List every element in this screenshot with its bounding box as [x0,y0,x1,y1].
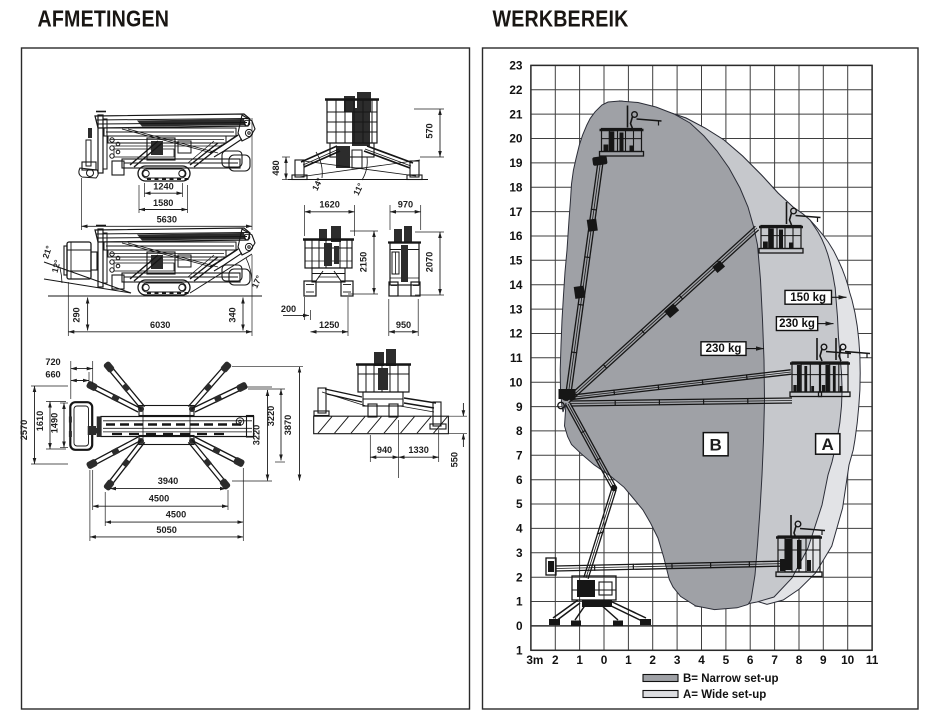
svg-text:0: 0 [516,619,523,633]
svg-text:5: 5 [723,653,730,667]
svg-text:22: 22 [509,83,523,97]
svg-text:2: 2 [552,653,559,667]
svg-text:17: 17 [509,205,523,219]
svg-text:9: 9 [516,400,523,414]
svg-text:5630: 5630 [157,215,177,225]
svg-text:2: 2 [649,653,656,667]
svg-text:10: 10 [841,653,855,667]
svg-text:1: 1 [516,644,523,658]
svg-text:1610: 1610 [35,411,45,431]
svg-text:A= Wide set-up: A= Wide set-up [683,689,766,701]
svg-text:1: 1 [516,595,523,609]
svg-text:1490: 1490 [50,413,60,433]
svg-text:3: 3 [516,546,523,560]
svg-text:7: 7 [516,449,523,463]
svg-text:12: 12 [509,327,523,341]
svg-text:21: 21 [509,107,523,121]
svg-text:1: 1 [576,653,583,667]
svg-text:3m: 3m [526,653,543,667]
svg-text:1580: 1580 [153,198,173,208]
svg-text:6: 6 [516,473,523,487]
svg-text:1250: 1250 [319,320,339,330]
svg-text:3220: 3220 [252,425,262,445]
svg-text:8: 8 [516,424,523,438]
svg-text:10: 10 [509,375,523,389]
svg-text:660: 660 [45,369,60,379]
svg-text:19: 19 [509,156,523,170]
svg-text:3: 3 [674,653,681,667]
svg-text:570: 570 [425,123,435,138]
svg-text:23: 23 [509,59,523,73]
svg-text:7: 7 [771,653,778,667]
svg-text:1330: 1330 [408,445,428,455]
svg-text:15: 15 [509,254,523,268]
svg-text:B: B [710,436,722,455]
svg-text:3220: 3220 [266,406,276,426]
svg-text:200: 200 [281,304,296,314]
svg-text:230 kg: 230 kg [706,343,742,355]
svg-text:3870: 3870 [283,415,293,435]
svg-text:720: 720 [45,357,60,367]
svg-text:230 kg: 230 kg [779,318,815,330]
svg-text:11: 11 [866,653,879,667]
svg-text:5050: 5050 [156,525,176,535]
svg-text:2: 2 [516,570,523,584]
svg-text:A: A [822,435,834,454]
svg-text:2570: 2570 [19,420,29,440]
svg-text:14: 14 [509,278,523,292]
svg-text:13: 13 [509,302,523,316]
svg-text:AFMETINGEN: AFMETINGEN [38,6,170,32]
svg-text:0: 0 [601,653,608,667]
svg-text:480: 480 [271,160,281,175]
svg-text:16: 16 [509,229,523,243]
svg-text:8: 8 [796,653,803,667]
svg-text:940: 940 [377,445,392,455]
svg-text:550: 550 [450,452,460,467]
svg-text:4500: 4500 [166,510,186,520]
svg-text:4: 4 [516,522,523,536]
svg-text:1: 1 [625,653,632,667]
svg-text:150 kg: 150 kg [790,292,826,304]
svg-text:11: 11 [510,351,523,365]
svg-text:970: 970 [398,200,413,210]
svg-text:18: 18 [509,180,523,194]
svg-text:5: 5 [516,497,523,511]
svg-text:950: 950 [396,320,411,330]
svg-text:4: 4 [698,653,705,667]
svg-text:6030: 6030 [150,320,170,330]
svg-text:290: 290 [72,307,82,322]
svg-text:2070: 2070 [425,252,435,272]
svg-text:20: 20 [509,132,523,146]
svg-text:1240: 1240 [153,182,173,192]
svg-text:WERKBEREIK: WERKBEREIK [493,6,629,32]
svg-text:4500: 4500 [149,494,169,504]
svg-text:1620: 1620 [319,200,339,210]
svg-text:B= Narrow set-up: B= Narrow set-up [683,673,779,685]
svg-text:2150: 2150 [359,252,369,272]
svg-text:340: 340 [228,307,238,322]
svg-text:6: 6 [747,653,754,667]
svg-text:3940: 3940 [158,476,178,486]
svg-text:9: 9 [820,653,827,667]
